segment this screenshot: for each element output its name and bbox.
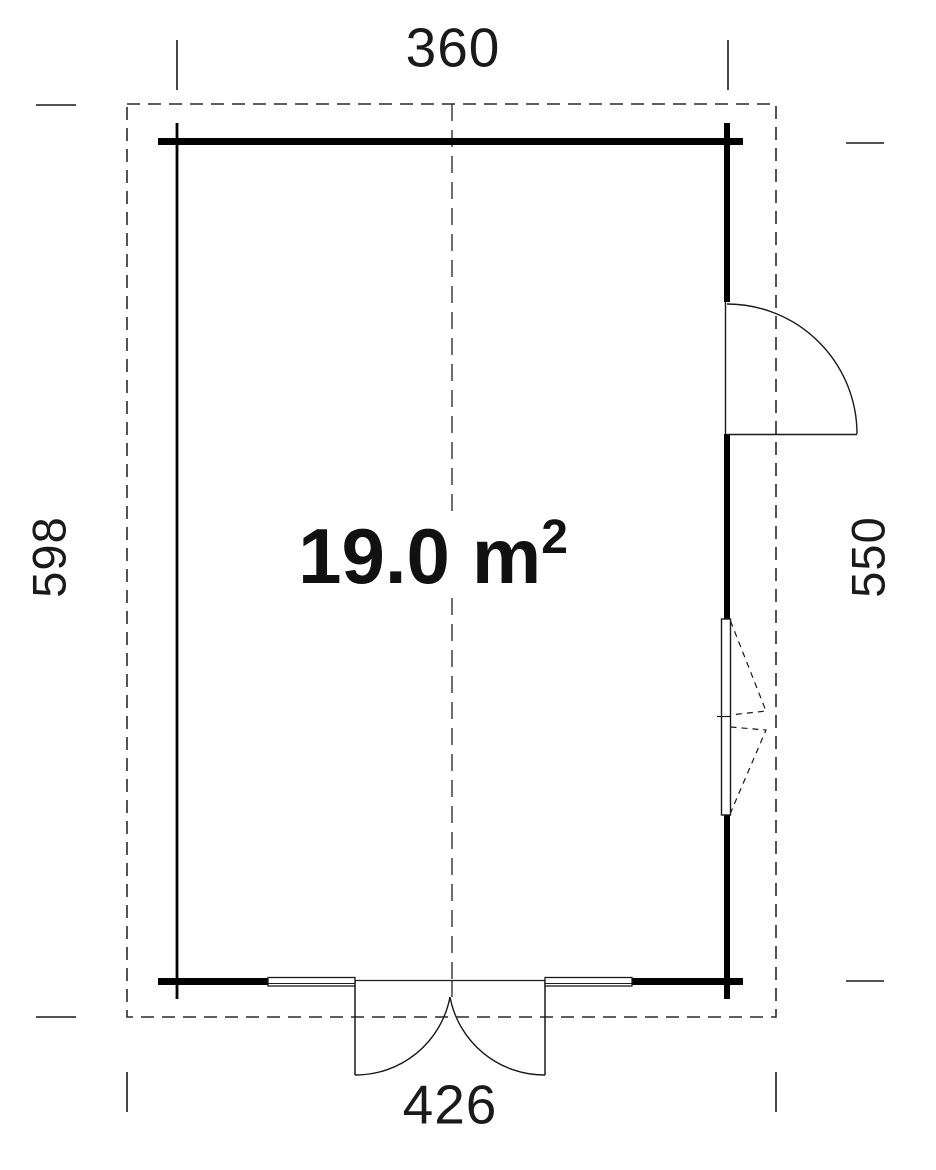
dimension-top: 360 <box>406 21 501 76</box>
door-swing-arc <box>727 304 857 434</box>
glazing-left <box>268 978 355 987</box>
door-swing-arc-left <box>355 997 450 1075</box>
double-swing-door <box>355 981 545 1076</box>
area-label: 19.0m2 <box>288 515 578 597</box>
casement-opening-upper <box>731 621 767 715</box>
dimension-right: 550 <box>845 516 892 597</box>
door-swing-arc-right <box>450 997 545 1075</box>
dimension-bottom: 426 <box>403 1078 498 1133</box>
casement-opening-lower <box>731 727 767 813</box>
glazing-panels <box>268 978 632 987</box>
dimension-left: 598 <box>26 516 73 597</box>
glazing-right <box>545 978 632 987</box>
area-exponent: 2 <box>541 511 568 564</box>
casement-window <box>717 619 766 815</box>
area-unit: m <box>472 512 541 600</box>
area-value: 19.0 <box>298 512 450 600</box>
floor-plan: 360 426 598 550 19.0m2 <box>0 0 936 1170</box>
single-swing-door <box>726 302 858 435</box>
